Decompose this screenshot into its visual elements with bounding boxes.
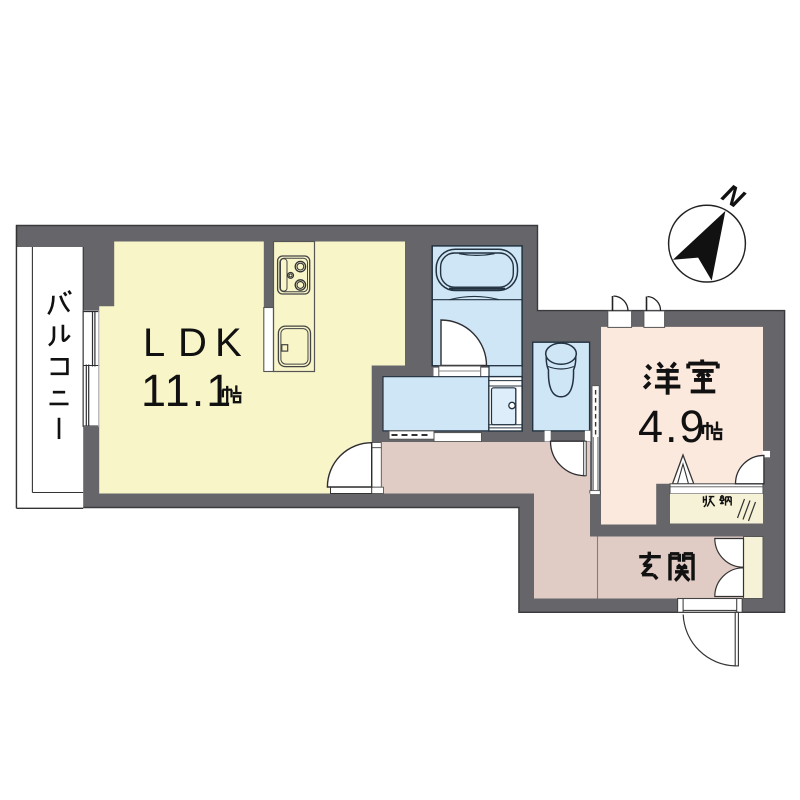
svg-text:4.9: 4.9 bbox=[638, 401, 707, 452]
svg-text:L: L bbox=[143, 321, 165, 365]
svg-text:11.1: 11.1 bbox=[141, 365, 233, 416]
svg-text:K: K bbox=[215, 321, 242, 365]
svg-text:D: D bbox=[178, 321, 207, 365]
